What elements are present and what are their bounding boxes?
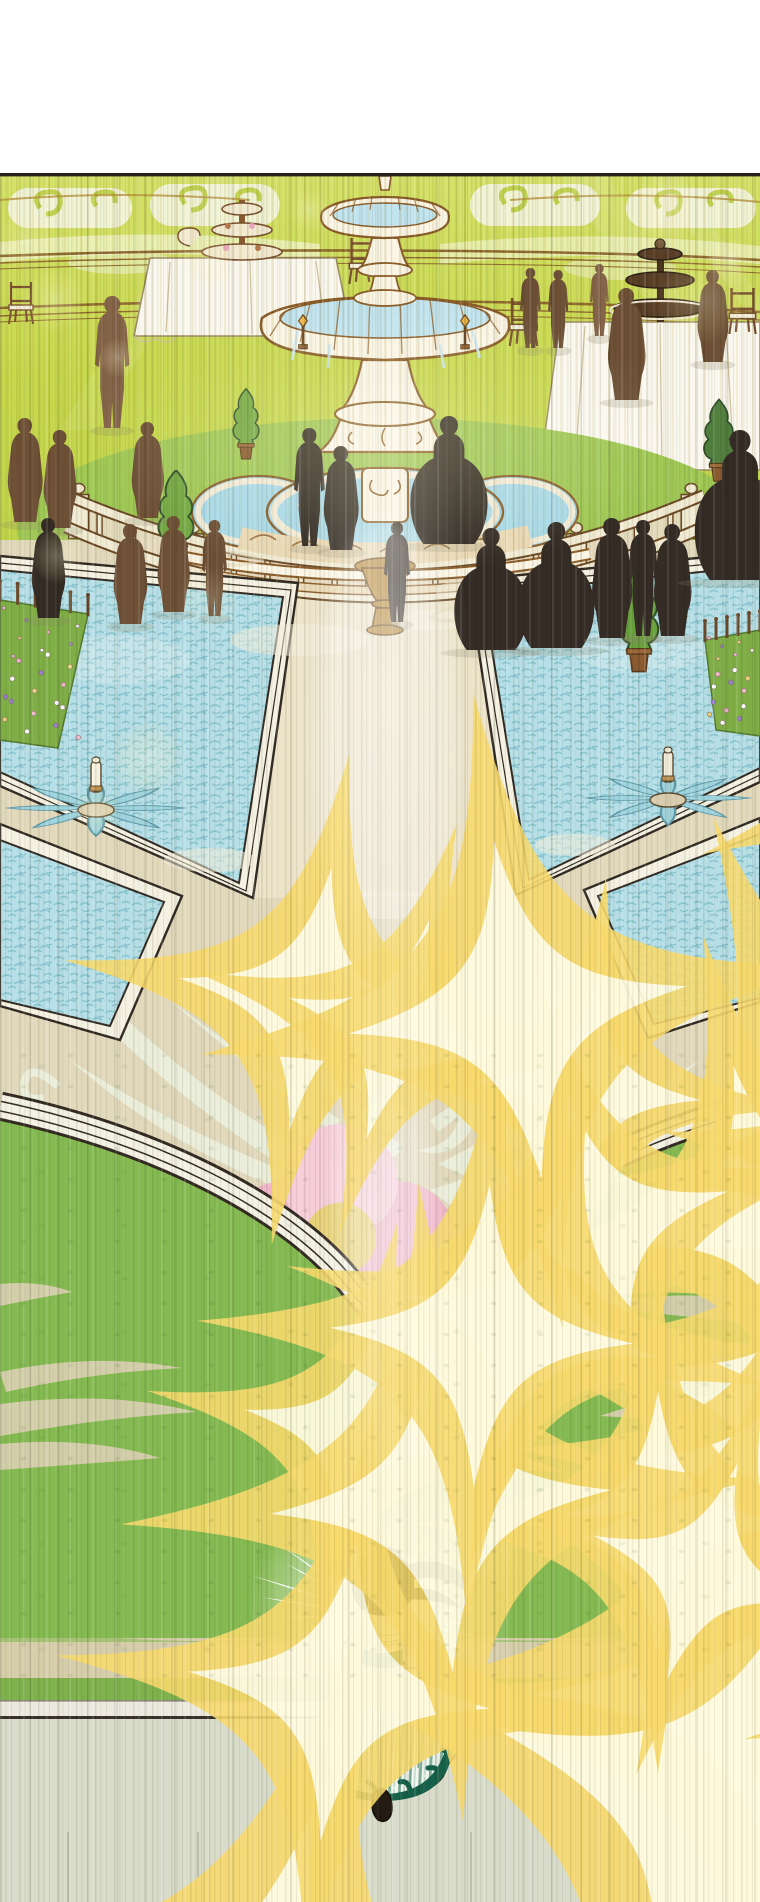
panel-border-top bbox=[0, 173, 760, 176]
webtoon-panel-stage bbox=[0, 0, 760, 1902]
flower-dot bbox=[61, 682, 66, 687]
bokeh-glow bbox=[98, 338, 138, 378]
bokeh-glow bbox=[30, 528, 86, 584]
top-margin bbox=[0, 0, 760, 173]
fence-post-knob bbox=[68, 590, 72, 594]
flower-dot bbox=[32, 688, 37, 693]
fence-post-knob bbox=[703, 619, 707, 623]
garden-party-illustration bbox=[0, 0, 760, 1902]
flower-dot bbox=[9, 699, 14, 704]
flower-dot bbox=[737, 716, 742, 721]
flower-dot bbox=[25, 729, 30, 734]
flower-dot bbox=[69, 642, 72, 645]
flower-dot bbox=[31, 711, 36, 716]
pedestal-urn bbox=[685, 483, 697, 493]
flower-dot bbox=[16, 658, 21, 663]
guest-shadow bbox=[545, 346, 571, 356]
flower-dot bbox=[40, 648, 43, 651]
bokeh-glow bbox=[110, 720, 186, 796]
flower-dot bbox=[707, 636, 710, 639]
flower-dot bbox=[11, 654, 14, 657]
guest-shadow bbox=[587, 334, 611, 344]
fence-post-knob bbox=[736, 613, 740, 617]
flower-dot bbox=[745, 676, 750, 681]
fence-post-knob bbox=[725, 615, 729, 619]
flower-dot bbox=[733, 653, 736, 656]
flower-dot bbox=[2, 717, 7, 722]
flower-dot bbox=[724, 708, 729, 713]
flower-dot bbox=[707, 712, 712, 717]
flower-dot bbox=[3, 694, 8, 699]
flower-dot bbox=[732, 668, 737, 673]
bokeh-glow bbox=[182, 236, 234, 288]
fence-post-knob bbox=[747, 611, 751, 615]
bokeh-glow bbox=[624, 176, 700, 252]
flower-dot bbox=[715, 672, 720, 677]
fence-post-knob bbox=[16, 582, 20, 586]
fence-post-knob bbox=[86, 593, 90, 597]
bokeh-glow bbox=[288, 188, 332, 232]
flower-dot bbox=[68, 664, 73, 669]
flower-dot bbox=[717, 657, 720, 660]
flower-dot bbox=[728, 680, 733, 685]
flower-dot bbox=[750, 649, 753, 652]
fountain-pedestal bbox=[362, 468, 408, 522]
flower-dot bbox=[45, 652, 50, 657]
flower-dot bbox=[10, 676, 15, 681]
flower-dot bbox=[76, 735, 81, 740]
flower-dot bbox=[60, 705, 65, 710]
flower-dot bbox=[54, 700, 59, 705]
guest-shadow bbox=[90, 426, 135, 436]
bokeh-glow bbox=[654, 254, 746, 346]
flower-dot bbox=[711, 684, 716, 689]
flower-dot bbox=[54, 723, 59, 728]
flower-dot bbox=[18, 636, 21, 639]
bokeh-glow bbox=[176, 568, 240, 632]
flower-dot bbox=[741, 704, 746, 709]
flower-dot bbox=[76, 624, 79, 627]
flower-dot bbox=[47, 630, 50, 633]
bokeh-glow bbox=[342, 650, 438, 746]
bokeh-glow bbox=[21, 266, 89, 334]
flower-dot bbox=[720, 720, 725, 725]
flower-dot bbox=[2, 606, 5, 609]
bokeh-glow bbox=[72, 788, 120, 836]
flower-dot bbox=[39, 670, 44, 675]
flower-dot bbox=[720, 645, 723, 648]
flower-dot bbox=[737, 640, 740, 643]
guest-shadow bbox=[517, 346, 544, 356]
flower-dot bbox=[741, 688, 746, 693]
fence-post-knob bbox=[714, 617, 718, 621]
flower-dot bbox=[711, 700, 716, 705]
